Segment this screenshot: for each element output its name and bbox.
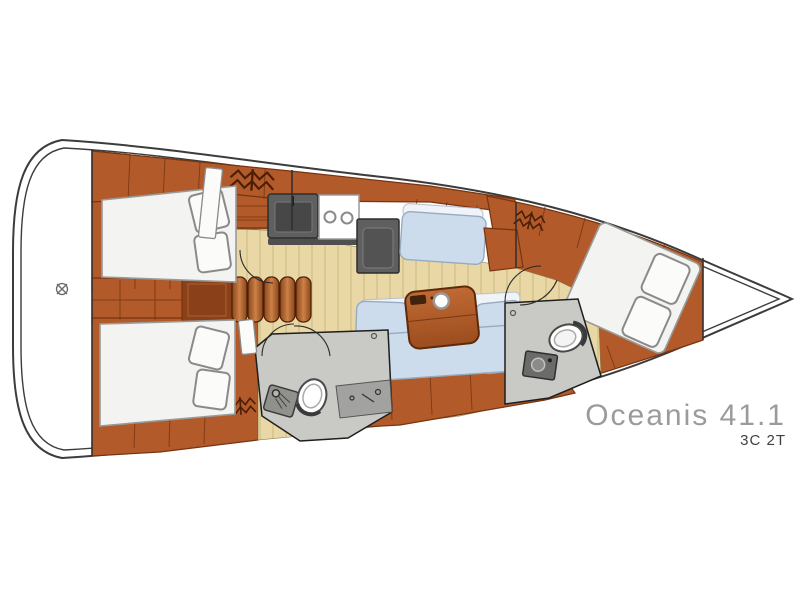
companionway-landing	[182, 278, 232, 322]
boat-floorplan	[0, 0, 800, 600]
aft-cabin-starboard-bed	[100, 320, 235, 426]
forward-cabin-door-leaf	[484, 228, 523, 271]
pillow	[193, 369, 231, 410]
sink-icon	[522, 351, 557, 380]
port-settee	[399, 203, 486, 265]
table-cupholder-icon	[433, 293, 449, 309]
galley-sink-icon	[275, 202, 312, 232]
head-door-leaf	[238, 319, 256, 354]
companionway	[182, 277, 311, 322]
title-block: Oceanis 41.1 3C 2T	[585, 400, 786, 449]
companionway-steps	[232, 277, 311, 322]
settee-cushion	[399, 211, 486, 265]
layout-code: 3C 2T	[585, 432, 786, 449]
model-name: Oceanis 41.1	[585, 400, 786, 432]
head-vanity	[336, 380, 392, 418]
floorplan-canvas: Oceanis 41.1 3C 2T	[0, 0, 800, 600]
fridge-door	[363, 228, 393, 268]
salon-table	[404, 285, 480, 349]
table-fiddle	[410, 295, 427, 306]
